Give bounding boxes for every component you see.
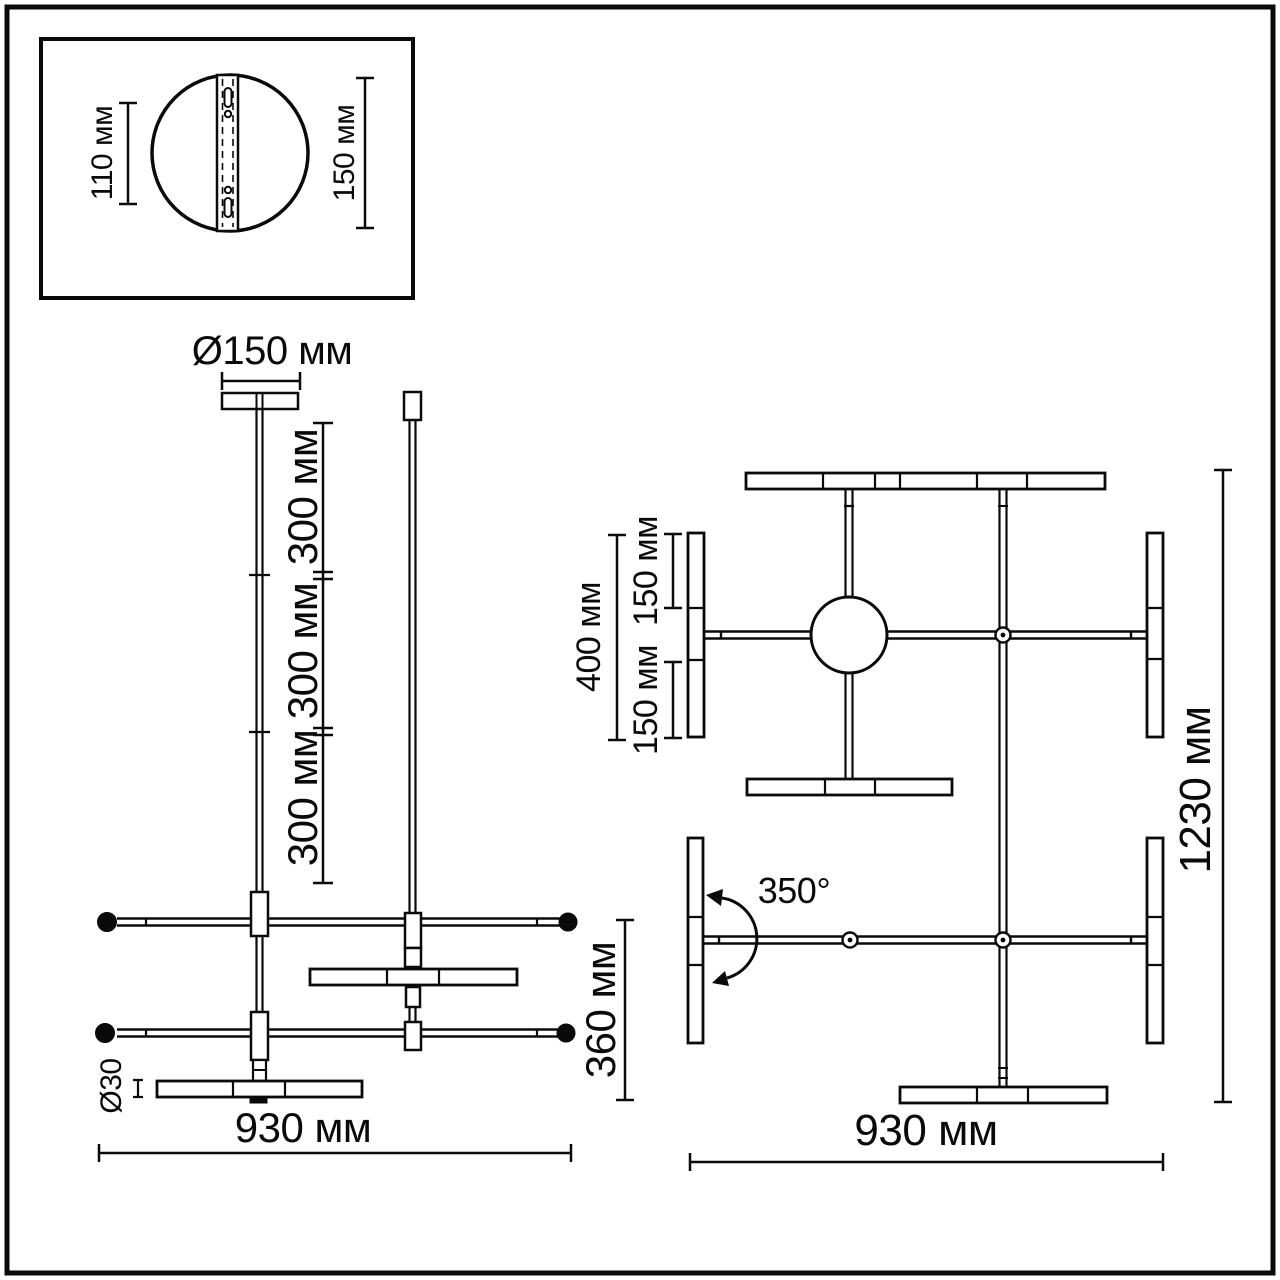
tube-half-top-label: 150 мм <box>629 516 663 626</box>
rod-section-1-label: 300 мм <box>282 429 324 566</box>
detail-height-dim-label: 110 мм <box>88 106 118 200</box>
rod-diameter-label: Ø30 <box>97 1058 127 1113</box>
body-height-label: 360 мм <box>580 942 622 1079</box>
rod-section-3-label: 300 мм <box>282 730 324 867</box>
front-width-label: 930 мм <box>235 1107 372 1149</box>
top-view-drawing <box>608 470 1232 1171</box>
tube-half-bottom-label: 150 мм <box>629 645 663 755</box>
rod-section-2-label: 300 мм <box>282 583 324 720</box>
canopy-diameter-label: Ø150 мм <box>192 331 352 371</box>
detail-width-dim-label: 150 мм <box>330 105 360 202</box>
top-view-length-label: 1230 мм <box>1174 706 1218 873</box>
front-view-drawing <box>96 372 635 1162</box>
top-view-width-label: 930 мм <box>854 1109 997 1153</box>
technical-drawing <box>0 0 1280 1280</box>
tube-length-label: 400 мм <box>572 582 606 692</box>
rotation-angle-label: 350° <box>758 873 830 909</box>
lamp-dimension-drawing: 110 мм 150 мм Ø150 мм 300 мм 300 мм 300 … <box>0 0 1280 1280</box>
